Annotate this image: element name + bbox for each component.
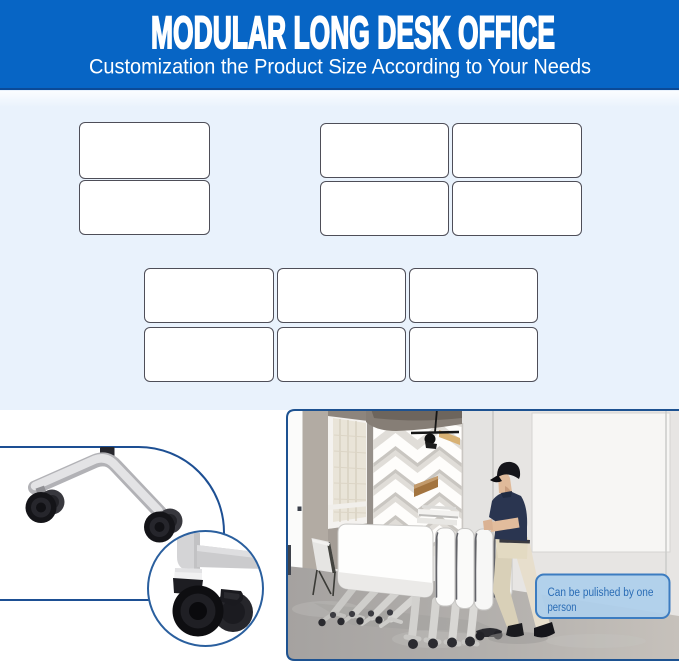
- svg-text:Can be pulished by one: Can be pulished by one: [548, 587, 654, 599]
- svg-text:MODULAR LONG DESK OFFICE: MODULAR LONG DESK OFFICE: [151, 7, 555, 58]
- svg-text:Customization the Product Size: Customization the Product Size According…: [89, 55, 591, 79]
- svg-text:person: person: [548, 602, 577, 614]
